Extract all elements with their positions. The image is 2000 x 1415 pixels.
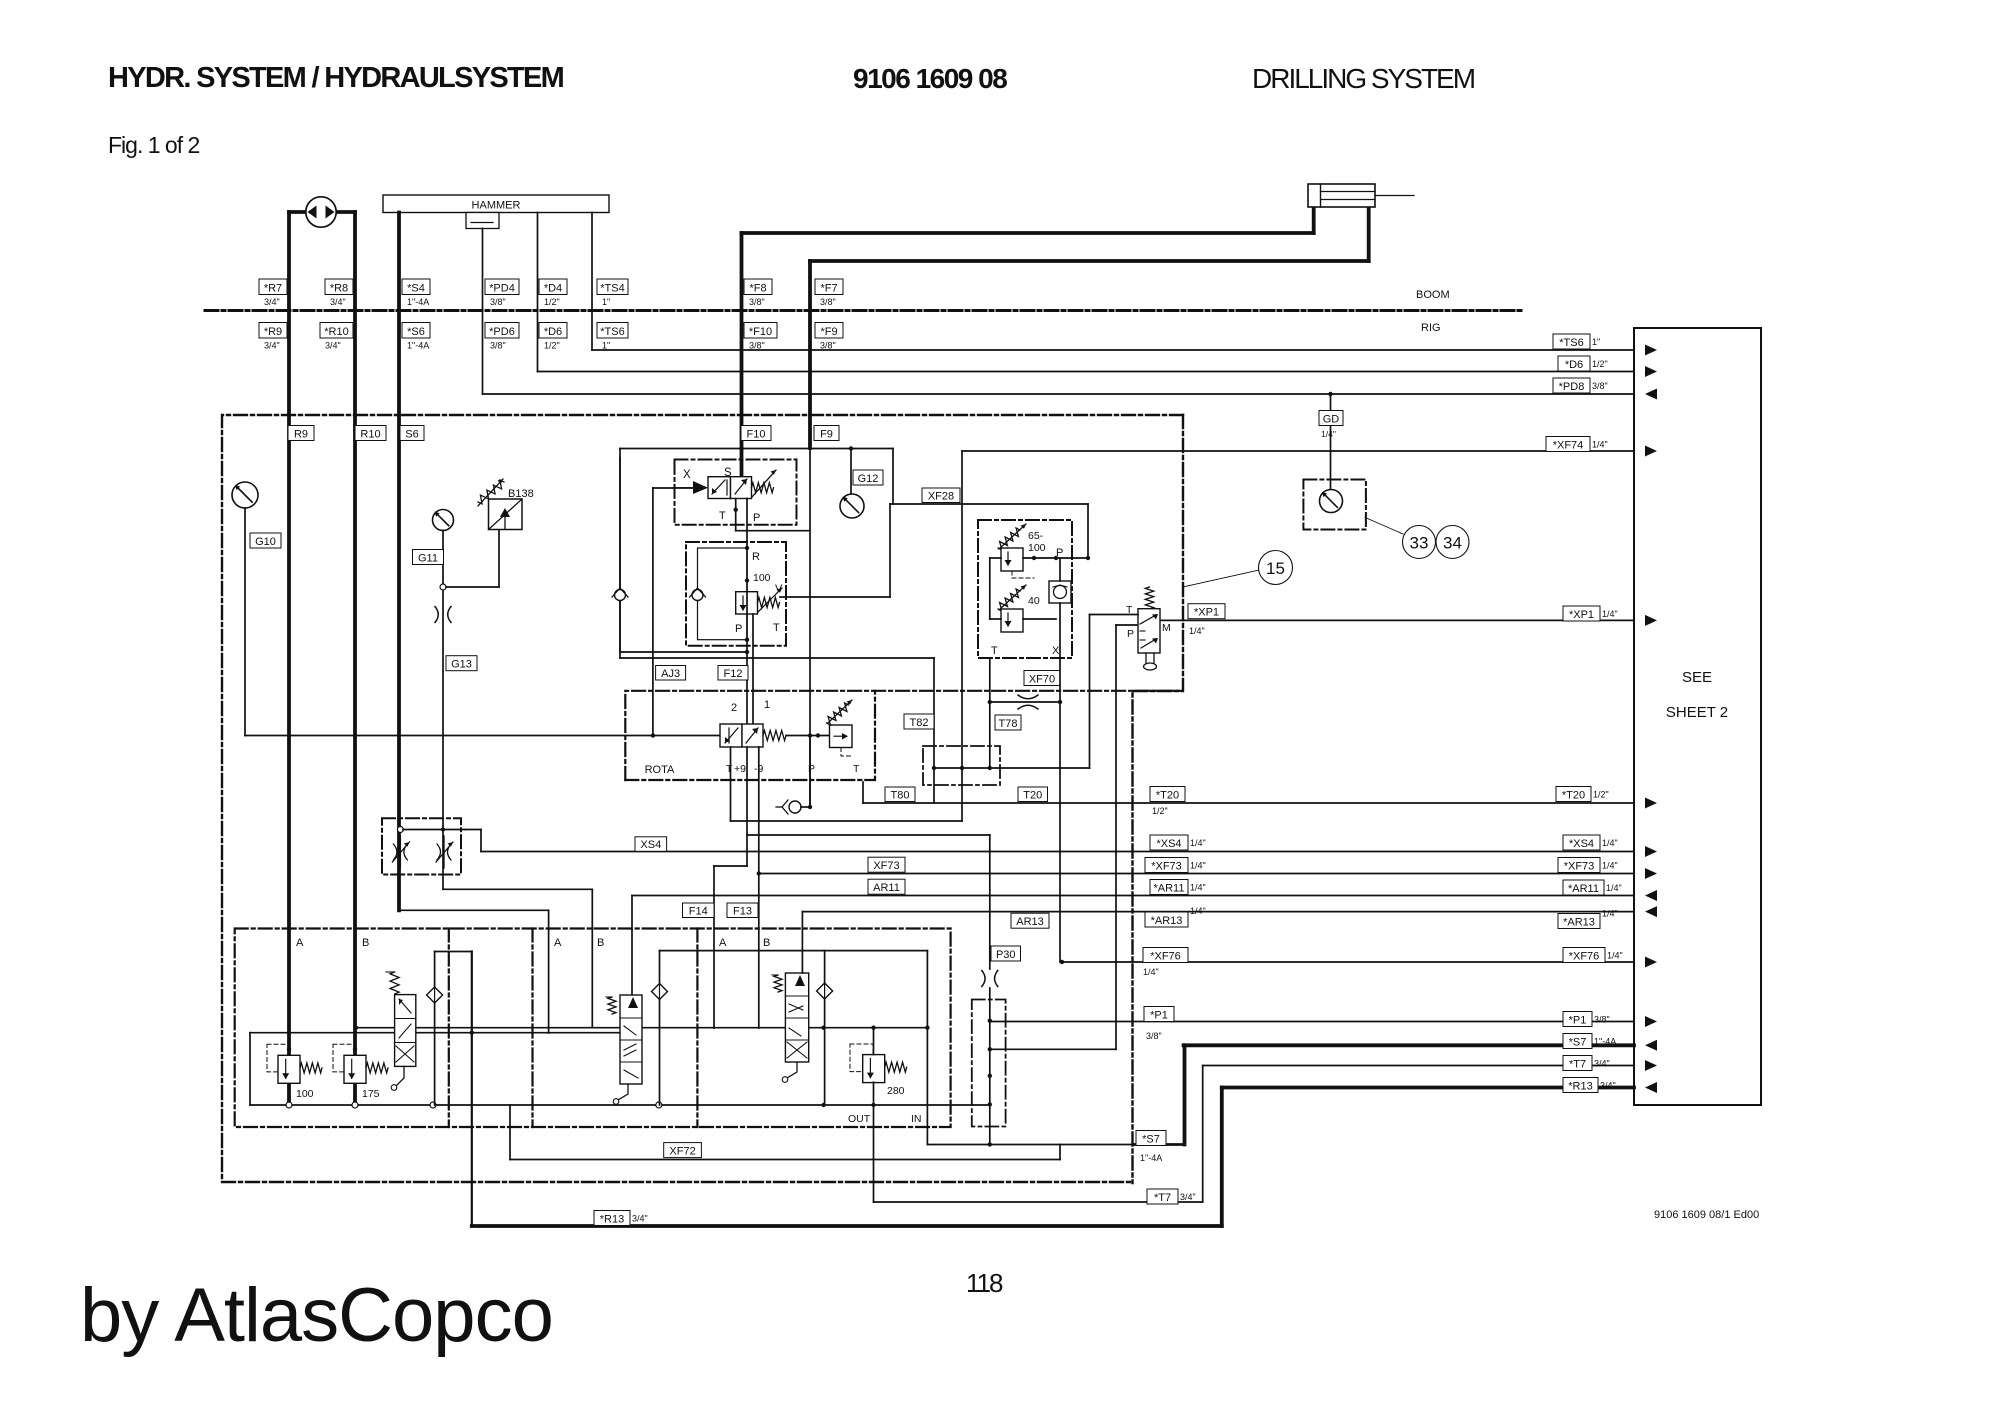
svg-text:ROTA: ROTA [645, 764, 675, 776]
svg-text:*P1: *P1 [1569, 1014, 1587, 1026]
svg-text:*AR11: *AR11 [1568, 883, 1599, 895]
svg-text:XS4: XS4 [640, 839, 661, 851]
svg-text:*S6: *S6 [407, 326, 425, 338]
svg-text:T: T [991, 645, 998, 657]
svg-text:HAMMER: HAMMER [472, 200, 521, 212]
svg-text:1/4": 1/4" [1606, 883, 1622, 893]
svg-text:1/2": 1/2" [544, 297, 560, 307]
svg-text:T82: T82 [910, 717, 929, 729]
svg-text:A: A [296, 937, 304, 949]
svg-text:T: T [726, 763, 733, 775]
svg-text:G11: G11 [418, 552, 438, 564]
svg-text:1/2": 1/2" [1593, 790, 1609, 800]
svg-text:*PD8: *PD8 [1559, 381, 1585, 393]
svg-text:*F7: *F7 [820, 282, 837, 294]
svg-text:*TS6: *TS6 [600, 326, 624, 338]
svg-text:G10: G10 [255, 536, 276, 548]
svg-text:XF73: XF73 [873, 860, 899, 872]
svg-text:G12: G12 [858, 473, 879, 485]
svg-text:AR11: AR11 [873, 882, 900, 894]
svg-text:T78: T78 [999, 718, 1018, 730]
svg-text:X: X [1052, 645, 1060, 657]
svg-text:*XF73: *XF73 [1151, 860, 1182, 872]
svg-text:SEE: SEE [1682, 669, 1712, 686]
svg-text:3/4": 3/4" [632, 1214, 648, 1224]
svg-text:1/4": 1/4" [1592, 440, 1608, 450]
svg-text:F14: F14 [689, 905, 708, 917]
svg-text:R: R [752, 551, 760, 563]
svg-text:1/4": 1/4" [1602, 861, 1618, 871]
svg-text:3/8": 3/8" [749, 341, 765, 351]
svg-text:*XF73: *XF73 [1564, 860, 1595, 872]
svg-text:1/2": 1/2" [544, 341, 560, 351]
svg-text:100: 100 [296, 1088, 314, 1100]
svg-text:*R10: *R10 [324, 326, 348, 338]
svg-text:*PD4: *PD4 [489, 282, 515, 294]
svg-text:*XF74: *XF74 [1553, 439, 1584, 451]
svg-text:3/8": 3/8" [820, 297, 836, 307]
svg-text:XF28: XF28 [928, 490, 954, 502]
svg-text:*TS4: *TS4 [600, 282, 624, 294]
svg-text:V: V [775, 583, 783, 595]
svg-text:+9: +9 [734, 763, 746, 775]
svg-text:*T20: *T20 [1562, 789, 1585, 801]
svg-text:*XS4: *XS4 [1156, 838, 1181, 850]
svg-text:G13: G13 [451, 659, 472, 671]
svg-text:1/4": 1/4" [1190, 838, 1206, 848]
svg-text:*R13: *R13 [600, 1213, 624, 1225]
svg-text:*T7: *T7 [1569, 1058, 1586, 1070]
svg-text:1/2": 1/2" [1152, 806, 1168, 816]
svg-text:S6: S6 [405, 428, 418, 440]
svg-text:3/4": 3/4" [325, 341, 341, 351]
svg-text:1": 1" [602, 341, 610, 351]
svg-text:1/4": 1/4" [1607, 951, 1623, 961]
svg-text:280: 280 [887, 1085, 905, 1097]
svg-text:*D6: *D6 [544, 326, 562, 338]
svg-text:*F9: *F9 [820, 326, 837, 338]
svg-text:*R13: *R13 [1568, 1080, 1592, 1092]
svg-text:*TS6: *TS6 [1559, 337, 1583, 349]
svg-text:F10: F10 [747, 428, 766, 440]
svg-text:RIG: RIG [1421, 322, 1441, 334]
svg-text:*XF76: *XF76 [1150, 950, 1181, 962]
svg-text:*P1: *P1 [1150, 1009, 1168, 1021]
svg-text:F13: F13 [733, 905, 752, 917]
svg-text:1: 1 [764, 699, 770, 711]
svg-text:P30: P30 [996, 949, 1016, 961]
svg-text:1": 1" [1592, 337, 1600, 347]
svg-text:F12: F12 [724, 668, 743, 680]
svg-text:*D6: *D6 [1565, 359, 1583, 371]
svg-text:1/4": 1/4" [1602, 838, 1618, 848]
svg-text:B: B [362, 937, 369, 949]
svg-text:1"-4A: 1"-4A [1594, 1037, 1616, 1047]
svg-text:*AR11: *AR11 [1154, 882, 1185, 894]
svg-text:*XS4: *XS4 [1569, 838, 1594, 850]
svg-text:1/4": 1/4" [1189, 626, 1205, 636]
svg-text:3/8": 3/8" [490, 341, 506, 351]
svg-text:P: P [753, 512, 760, 524]
svg-text:*D4: *D4 [544, 282, 562, 294]
svg-text:GD: GD [1323, 413, 1340, 425]
svg-text:XF70: XF70 [1029, 673, 1055, 685]
svg-text:9106 1609 08/1 Ed00: 9106 1609 08/1 Ed00 [1654, 1209, 1759, 1221]
svg-text:1"-4A: 1"-4A [407, 297, 429, 307]
svg-text:*XP1: *XP1 [1194, 607, 1219, 619]
svg-text:AR13: AR13 [1016, 916, 1044, 928]
svg-text:*T7: *T7 [1154, 1192, 1171, 1204]
svg-text:*S7: *S7 [1569, 1036, 1587, 1048]
svg-text:40: 40 [1028, 595, 1040, 607]
svg-text:3/8": 3/8" [1146, 1031, 1162, 1041]
svg-text:1"-4A: 1"-4A [407, 341, 429, 351]
svg-text:100: 100 [753, 572, 771, 584]
svg-text:15: 15 [1266, 559, 1285, 578]
svg-text:X: X [683, 469, 691, 481]
svg-text:R9: R9 [294, 428, 308, 440]
svg-text:100: 100 [1028, 542, 1046, 554]
svg-text:*F10: *F10 [749, 326, 772, 338]
svg-text:A: A [719, 937, 727, 949]
svg-text:1/4": 1/4" [1190, 883, 1206, 893]
svg-text:SHEET 2: SHEET 2 [1666, 704, 1728, 721]
svg-text:*R8: *R8 [330, 282, 348, 294]
svg-text:33: 33 [1410, 534, 1429, 553]
svg-text:P: P [808, 763, 815, 775]
svg-text:1/2": 1/2" [1592, 359, 1608, 369]
svg-text:P: P [1127, 628, 1134, 640]
svg-text:175: 175 [362, 1088, 380, 1100]
svg-text:*XF76: *XF76 [1569, 950, 1600, 962]
svg-text:3/4": 3/4" [264, 297, 280, 307]
svg-text:2: 2 [731, 702, 737, 714]
svg-text:3/8": 3/8" [749, 297, 765, 307]
svg-text:*S7: *S7 [1142, 1133, 1160, 1145]
svg-text:*T20: *T20 [1156, 789, 1179, 801]
svg-text:XF72: XF72 [669, 1145, 695, 1157]
svg-text:1/4": 1/4" [1190, 906, 1206, 916]
svg-text:1/4": 1/4" [1602, 909, 1618, 919]
svg-text:*S4: *S4 [407, 282, 425, 294]
svg-text:OUT: OUT [848, 1113, 871, 1125]
svg-text:T: T [719, 510, 726, 522]
svg-text:B: B [763, 937, 770, 949]
svg-text:3/8": 3/8" [1594, 1015, 1610, 1025]
svg-text:3/4": 3/4" [1180, 1192, 1196, 1202]
svg-text:B138: B138 [508, 488, 534, 500]
svg-text:*R7: *R7 [264, 282, 282, 294]
svg-text:*AR13: *AR13 [1151, 915, 1183, 927]
svg-text:1/4": 1/4" [1321, 429, 1336, 439]
svg-text:B: B [597, 937, 604, 949]
svg-text:T80: T80 [891, 789, 910, 801]
svg-text:3/8": 3/8" [490, 297, 506, 307]
svg-text:T: T [1126, 604, 1133, 616]
svg-text:3/4": 3/4" [264, 341, 280, 351]
svg-text:1"-4A: 1"-4A [1140, 1153, 1162, 1163]
svg-text:P: P [735, 623, 742, 635]
svg-text:IN: IN [911, 1113, 922, 1125]
svg-text:*XP1: *XP1 [1569, 609, 1594, 621]
svg-text:1/4": 1/4" [1602, 609, 1618, 619]
svg-text:3/8": 3/8" [820, 341, 836, 351]
svg-text:BOOM: BOOM [1416, 289, 1450, 301]
svg-text:3/4": 3/4" [1600, 1081, 1616, 1091]
svg-text:*PD6: *PD6 [489, 326, 515, 338]
svg-text:AJ3: AJ3 [661, 668, 680, 680]
svg-text:1/4": 1/4" [1143, 967, 1159, 977]
svg-text:3/4": 3/4" [330, 297, 346, 307]
svg-text:3/4": 3/4" [1594, 1059, 1610, 1069]
svg-text:*R9: *R9 [264, 326, 282, 338]
svg-text:A: A [554, 937, 562, 949]
svg-text:65-: 65- [1028, 530, 1044, 542]
svg-text:1": 1" [602, 297, 610, 307]
svg-text:M: M [1162, 622, 1171, 634]
svg-text:T20: T20 [1023, 789, 1042, 801]
svg-text:F9: F9 [820, 428, 833, 440]
svg-text:*F8: *F8 [749, 282, 766, 294]
svg-text:34: 34 [1443, 534, 1462, 553]
svg-text:T: T [853, 763, 860, 775]
svg-text:1/4": 1/4" [1190, 861, 1206, 871]
svg-text:*AR13: *AR13 [1563, 916, 1595, 928]
svg-text:R10: R10 [360, 428, 380, 440]
svg-text:3/8": 3/8" [1592, 381, 1608, 391]
svg-text:T: T [773, 622, 780, 634]
